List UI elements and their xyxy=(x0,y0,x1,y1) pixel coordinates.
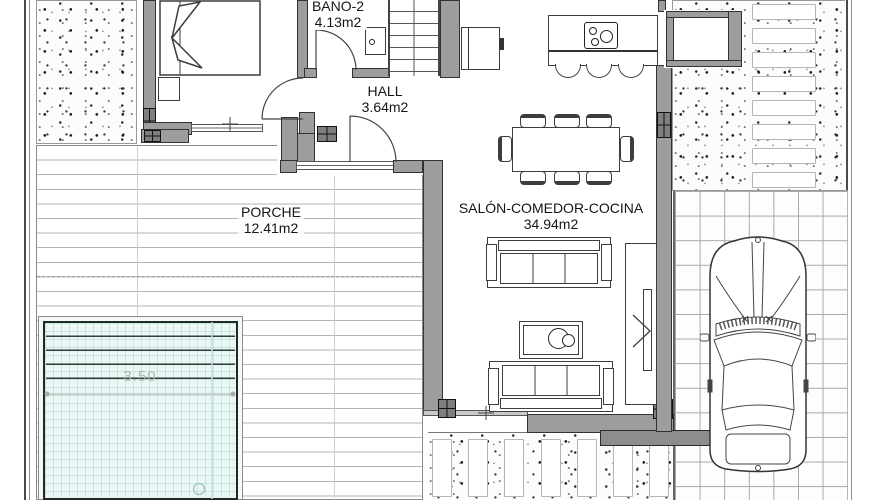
paver-slab xyxy=(468,439,488,497)
dining-chair xyxy=(554,114,580,128)
washbasin-knob xyxy=(369,39,375,45)
paver-slab xyxy=(752,76,816,92)
sofa-armrest xyxy=(488,368,499,405)
wall-salon-west xyxy=(423,160,443,412)
room-label-hall: HALL 3.64m2 xyxy=(359,84,412,115)
driveway-tiles xyxy=(673,190,848,500)
wall-garden-extension xyxy=(600,430,758,446)
room-area: 34.94m2 xyxy=(459,217,643,233)
room-label-bano2: BANO-2 4.13m2 xyxy=(309,0,367,30)
bar-stool xyxy=(586,64,612,78)
column-block-porch xyxy=(317,126,337,142)
coffee-table xyxy=(519,321,583,359)
paver-slab xyxy=(752,52,816,68)
dining-table xyxy=(512,127,620,172)
dining-chair xyxy=(498,136,512,162)
dining-chair xyxy=(620,136,634,162)
bar-stool xyxy=(618,64,644,78)
sofa-back xyxy=(500,398,602,409)
island-counter-edge xyxy=(549,50,657,52)
paver-slab xyxy=(752,148,816,164)
burner xyxy=(591,38,599,46)
cooktop xyxy=(584,22,618,49)
porch-pillar xyxy=(144,130,161,142)
dining-chair xyxy=(586,114,612,128)
room-area: 4.13m2 xyxy=(312,15,364,31)
window-hall-south xyxy=(296,161,394,170)
paver-slab xyxy=(649,439,669,497)
wall-hall-south xyxy=(393,160,423,173)
sofa xyxy=(487,237,611,288)
sofa-armrest xyxy=(603,368,614,405)
table-decor xyxy=(562,334,575,347)
deck-seam xyxy=(334,176,335,500)
paver-slab xyxy=(504,439,524,497)
paver-slab xyxy=(752,172,816,188)
sofa xyxy=(489,361,613,412)
paver-slab xyxy=(613,439,633,497)
tv-cabinet xyxy=(625,243,657,405)
window-bedroom-south xyxy=(191,124,263,132)
kitchen-appliance xyxy=(461,27,500,70)
boundary-line-left-inner xyxy=(29,0,30,500)
room-name: BANO-2 xyxy=(312,0,364,15)
bathroom-door xyxy=(316,30,356,70)
deck-divider-dashed xyxy=(37,276,424,277)
sofa-back xyxy=(498,240,600,251)
wall-bathroom-south xyxy=(304,68,317,78)
appliance-handle xyxy=(499,38,504,50)
sofa-seat xyxy=(500,253,598,284)
paver-slab xyxy=(752,4,816,20)
wall-hall-south xyxy=(280,160,297,173)
room-name: HALL xyxy=(362,84,409,100)
boundary-line-right-inner xyxy=(851,0,852,500)
wall-alcove-east xyxy=(728,11,742,67)
floor-plan: BANO-2 4.13m2 HALL 3.64m2 PORCHE 12.41m2… xyxy=(0,0,890,500)
wall-bedroom-bathroom-divider xyxy=(297,0,308,78)
window-salon-southwest xyxy=(438,399,456,418)
room-label-salon: SALÓN-COMEDOR-COCINA 34.94m2 xyxy=(456,201,646,232)
paver-slab xyxy=(541,439,561,497)
nightstand xyxy=(158,77,180,101)
burner xyxy=(600,30,613,43)
bar-stool xyxy=(555,64,581,78)
paver-slab xyxy=(577,439,597,497)
room-area: 3.64m2 xyxy=(362,100,409,116)
burner xyxy=(589,27,597,35)
room-name: SALÓN-COMEDOR-COCINA xyxy=(459,201,643,217)
tv-cabinet-shelf xyxy=(643,289,652,371)
pool-dimension-label: 3.50 xyxy=(120,369,159,386)
dining-chair xyxy=(586,171,612,185)
sofa-armrest xyxy=(486,244,497,281)
appliance-door-line xyxy=(468,28,469,69)
paver-slab xyxy=(752,124,816,140)
wall-alcove-south xyxy=(666,60,742,67)
paver-slab xyxy=(752,100,816,116)
wall-stairs-east xyxy=(440,0,460,78)
boundary-line-left xyxy=(24,0,26,500)
dining-chair xyxy=(520,171,546,185)
staircase xyxy=(388,0,440,76)
window-salon-east xyxy=(657,112,671,138)
room-label-porche: PORCHE 12.41m2 xyxy=(238,205,304,236)
bed xyxy=(160,1,260,75)
bathroom-washbasin xyxy=(365,27,386,55)
dining-chair xyxy=(520,114,546,128)
sofa-armrest xyxy=(601,244,612,281)
room-area: 12.41m2 xyxy=(241,221,301,237)
paver-slab xyxy=(432,439,452,497)
paver-slab xyxy=(752,28,816,44)
dining-chair xyxy=(554,171,580,185)
room-name: PORCHE xyxy=(241,205,301,221)
wall-bathroom-south xyxy=(352,68,390,78)
sofa-seat xyxy=(502,365,600,396)
bedroom-door xyxy=(262,78,303,119)
gravel-area-northwest xyxy=(36,0,137,144)
wall-alcove-west xyxy=(666,17,674,61)
